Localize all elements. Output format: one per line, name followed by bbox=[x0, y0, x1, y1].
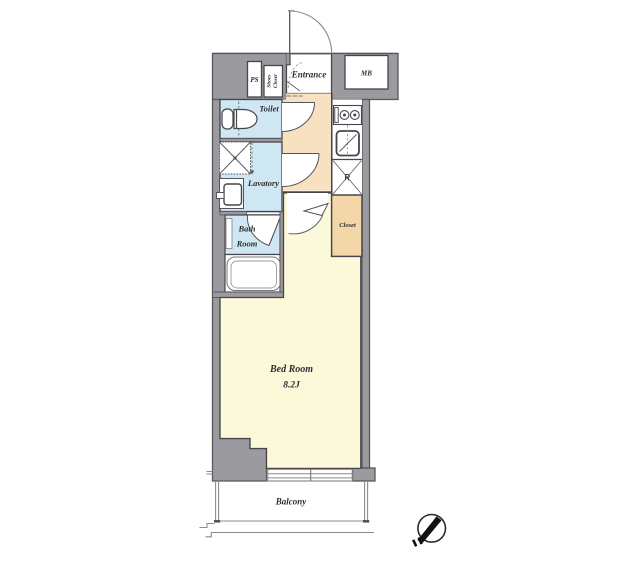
svg-text:Balcony: Balcony bbox=[275, 497, 308, 507]
svg-text:Entrance: Entrance bbox=[291, 70, 327, 80]
svg-text:MB: MB bbox=[360, 70, 372, 78]
svg-text:Room: Room bbox=[236, 239, 258, 249]
svg-text:PS: PS bbox=[250, 76, 258, 84]
svg-text:Bath: Bath bbox=[237, 224, 255, 234]
svg-text:Closet: Closet bbox=[273, 74, 279, 88]
svg-text:Closet: Closet bbox=[339, 222, 356, 229]
svg-text:Shoes: Shoes bbox=[267, 75, 273, 88]
svg-text:8.2J: 8.2J bbox=[283, 381, 300, 391]
svg-text:Lavatory: Lavatory bbox=[247, 178, 279, 188]
svg-text:Toilet: Toilet bbox=[259, 104, 279, 114]
svg-text:Bed Room: Bed Room bbox=[269, 364, 313, 375]
